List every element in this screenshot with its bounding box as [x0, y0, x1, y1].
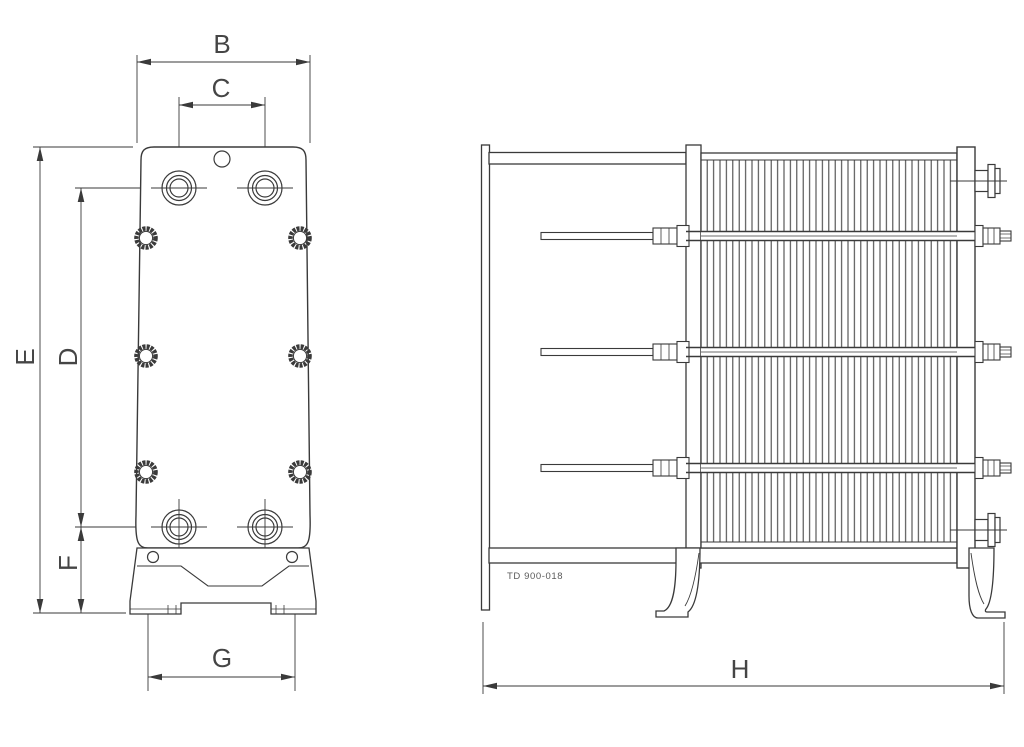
fixed-frame-plate	[957, 147, 975, 568]
dimension-e-lines	[33, 147, 133, 613]
rear-support-bar	[482, 145, 490, 610]
dimension-label-e: E	[12, 348, 38, 365]
lower-guiding-bar	[489, 548, 957, 563]
dimension-label-f: F	[55, 555, 81, 571]
frame-plate-outline	[136, 147, 310, 548]
dimension-label-g: G	[212, 645, 232, 671]
front-view	[33, 55, 316, 691]
dimension-label-c: C	[212, 75, 231, 101]
dimension-label-h: H	[731, 656, 750, 682]
side-foot-right	[969, 548, 1005, 618]
technical-drawing-canvas: B C E D F G H TD 900-018 const data = JS…	[0, 0, 1024, 747]
drawing-linework	[0, 0, 1024, 747]
dimension-label-d: D	[55, 348, 81, 367]
upper-carrying-bar	[489, 153, 686, 165]
dimension-label-b: B	[213, 31, 230, 57]
top-center-hole	[214, 151, 230, 167]
front-foot-bracket	[130, 548, 316, 614]
drawing-number: TD 900-018	[507, 571, 563, 582]
side-view	[482, 145, 1012, 694]
